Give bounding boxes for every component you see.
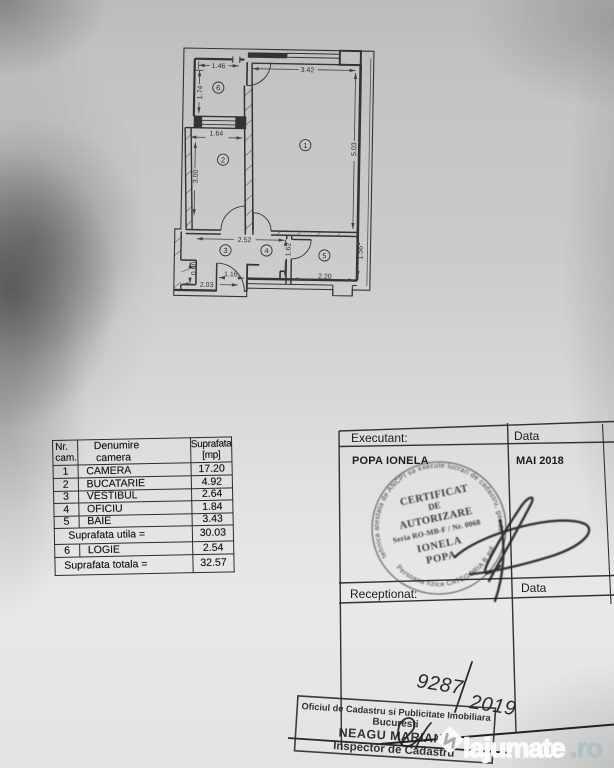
- svg-text:.ro: .ro: [570, 733, 602, 763]
- svg-text:lajumate: lajumate: [463, 733, 566, 763]
